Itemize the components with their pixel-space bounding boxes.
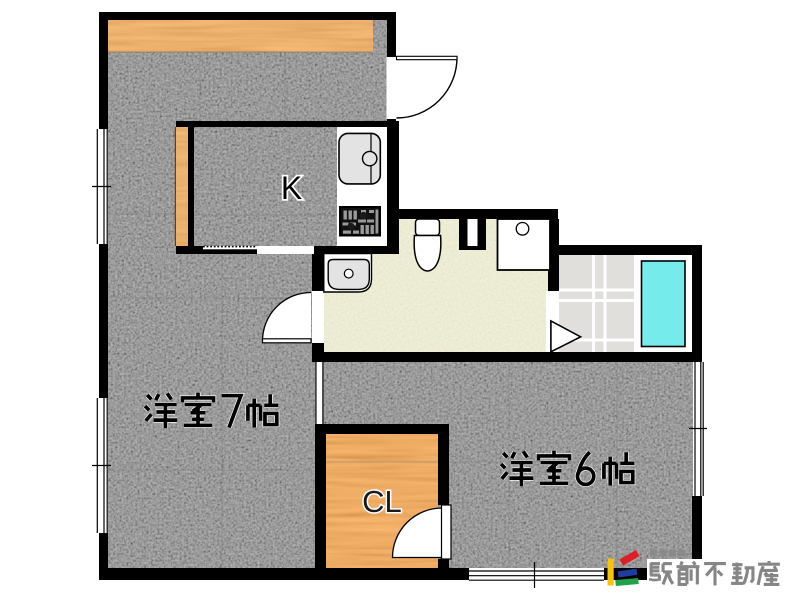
svg-text:K: K	[281, 170, 302, 206]
svg-text:CL: CL	[362, 484, 402, 519]
